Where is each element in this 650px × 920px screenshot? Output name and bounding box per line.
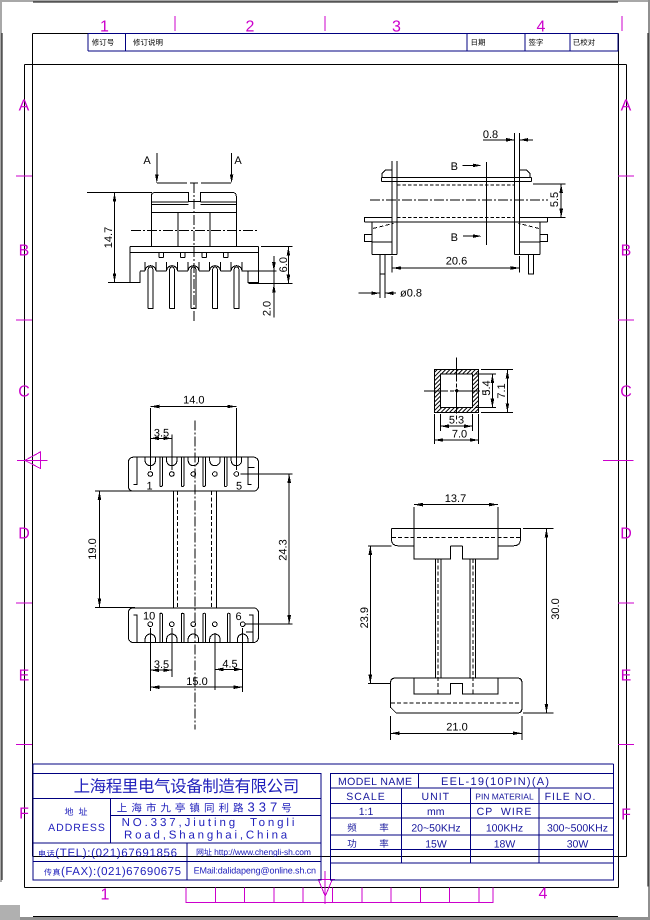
svg-text:MODEL NAME: MODEL NAME — [338, 776, 412, 788]
svg-text:14.7: 14.7 — [103, 227, 115, 248]
svg-text:18W: 18W — [494, 839, 516, 851]
svg-text:B: B — [621, 242, 632, 259]
svg-text:D: D — [620, 525, 632, 542]
svg-text:4: 4 — [539, 886, 548, 903]
svg-text:4: 4 — [537, 19, 546, 36]
svg-text:5.4: 5.4 — [481, 380, 493, 395]
svg-text:A: A — [234, 155, 242, 167]
svg-text:EMail:dalidapeng@online.sh.cn: EMail:dalidapeng@online.sh.cn — [194, 866, 316, 876]
svg-text:7.0: 7.0 — [452, 428, 467, 440]
svg-text:30W: 30W — [567, 839, 589, 851]
svg-text:UNIT: UNIT — [422, 791, 451, 803]
svg-text:4.5: 4.5 — [222, 659, 237, 671]
svg-text:地 址: 地 址 — [64, 807, 87, 817]
svg-text:19.0: 19.0 — [87, 538, 99, 559]
svg-text:修订说明: 修订说明 — [133, 38, 163, 47]
svg-text:SCALE: SCALE — [346, 791, 385, 803]
svg-text:20~50KHz: 20~50KHz — [411, 823, 460, 835]
svg-text:网址 http://www.chengli-sh.com: 网址 http://www.chengli-sh.com — [196, 847, 311, 857]
svg-text:F: F — [19, 806, 29, 823]
svg-text:FILE NO.: FILE NO. — [545, 791, 597, 803]
svg-text:传真(FAX):(021)67690675: 传真(FAX):(021)67690675 — [44, 866, 181, 878]
svg-text:B: B — [19, 242, 30, 259]
svg-text:24.3: 24.3 — [277, 539, 289, 560]
svg-text:NO.337,Jiuting Tongli: NO.337,Jiuting Tongli — [122, 817, 295, 829]
svg-text:20.6: 20.6 — [446, 256, 467, 268]
svg-text:Road,Shanghai,China: Road,Shanghai,China — [124, 830, 288, 842]
svg-text:B: B — [451, 232, 458, 244]
svg-text:CP WIRE: CP WIRE — [477, 806, 533, 818]
svg-text:14.0: 14.0 — [183, 395, 204, 407]
svg-text:EEL-19(10PIN)(A): EEL-19(10PIN)(A) — [441, 776, 549, 788]
svg-text:率: 率 — [379, 838, 389, 850]
svg-text:2.0: 2.0 — [262, 301, 274, 316]
svg-text:3.5: 3.5 — [154, 428, 169, 440]
svg-text:率: 率 — [379, 822, 389, 834]
svg-text:A: A — [19, 97, 30, 114]
svg-text:修订号: 修订号 — [92, 38, 115, 47]
svg-text:上海程里电气设备制造有限公司: 上海程里电气设备制造有限公司 — [74, 778, 300, 796]
svg-text:mm: mm — [427, 806, 445, 818]
svg-text:7.1: 7.1 — [496, 383, 508, 398]
svg-text:A: A — [143, 155, 151, 167]
svg-text:F: F — [621, 807, 631, 824]
svg-text:电话(TEL):(021)67691856: 电话(TEL):(021)67691856 — [38, 848, 177, 860]
svg-text:功: 功 — [347, 839, 357, 850]
svg-text:PIN MATERIAL: PIN MATERIAL — [475, 792, 534, 802]
svg-text:1: 1 — [101, 887, 110, 904]
svg-text:签字: 签字 — [529, 38, 544, 47]
svg-text:6: 6 — [236, 611, 242, 623]
svg-text:10: 10 — [143, 611, 155, 623]
svg-text:30.0: 30.0 — [550, 598, 562, 619]
svg-text:5.5: 5.5 — [549, 192, 561, 207]
svg-text:D: D — [18, 525, 30, 542]
svg-text:C: C — [18, 383, 30, 400]
svg-text:15.0: 15.0 — [186, 676, 207, 688]
svg-text:E: E — [621, 667, 632, 684]
svg-text:1:1: 1:1 — [359, 806, 374, 818]
svg-text:21.0: 21.0 — [446, 722, 467, 734]
svg-text:ø0.8: ø0.8 — [400, 288, 422, 300]
svg-text:5.3: 5.3 — [449, 415, 464, 427]
svg-text:C: C — [620, 383, 632, 400]
svg-text:5: 5 — [236, 481, 242, 493]
svg-text:3: 3 — [392, 19, 401, 36]
svg-text:2: 2 — [246, 19, 255, 36]
svg-text:13.7: 13.7 — [445, 493, 466, 505]
svg-text:ADDRESS: ADDRESS — [48, 822, 106, 834]
svg-text:已校对: 已校对 — [573, 38, 596, 47]
svg-text:E: E — [19, 667, 30, 684]
svg-text:6.0: 6.0 — [278, 257, 290, 272]
svg-text:A: A — [621, 97, 632, 114]
svg-text:15W: 15W — [425, 839, 447, 851]
svg-text:1: 1 — [100, 19, 109, 36]
svg-text:3.5: 3.5 — [154, 659, 169, 671]
svg-text:100KHz: 100KHz — [486, 823, 523, 835]
svg-text:B: B — [451, 161, 458, 173]
svg-text:23.9: 23.9 — [359, 607, 371, 628]
svg-text:频: 频 — [347, 823, 357, 834]
svg-text:1: 1 — [147, 481, 153, 493]
svg-text:300~500KHz: 300~500KHz — [547, 823, 608, 835]
svg-text:日期: 日期 — [471, 38, 486, 47]
svg-text:0.8: 0.8 — [483, 129, 498, 141]
